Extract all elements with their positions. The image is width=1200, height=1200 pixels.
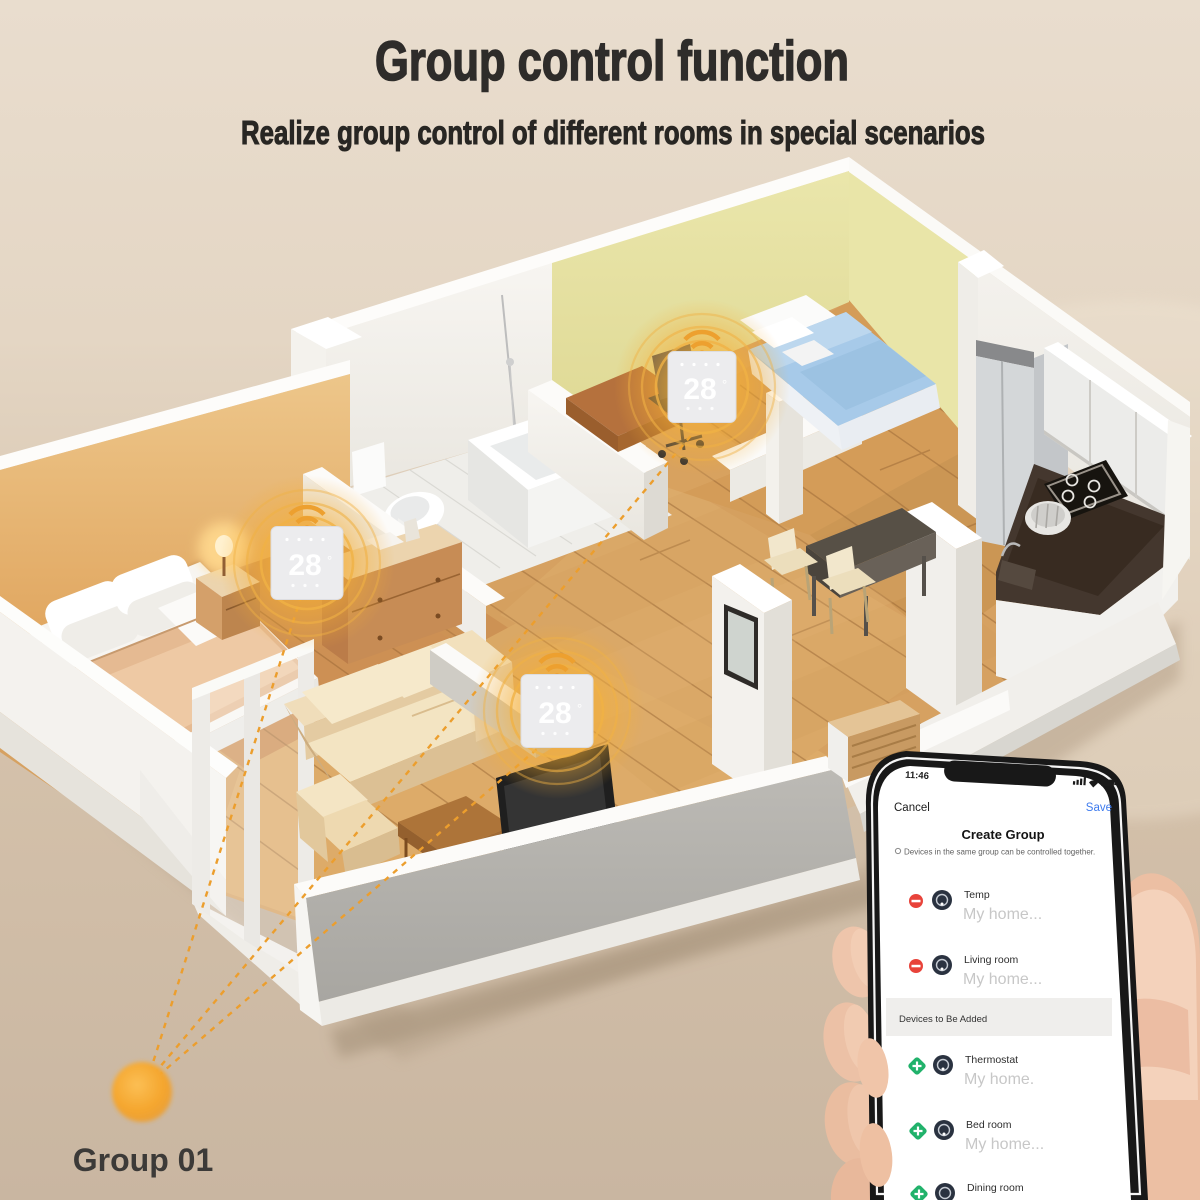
svg-text:Thermostat: Thermostat — [965, 1054, 1018, 1066]
svg-text:Create Group: Create Group — [961, 827, 1044, 842]
svg-text:My home...: My home... — [963, 906, 1042, 923]
svg-text:Realize group control of diffe: Realize group control of different rooms… — [241, 114, 985, 151]
svg-text:Dining room: Dining room — [967, 1182, 1024, 1194]
svg-text:°: ° — [577, 701, 582, 716]
svg-text:Devices to Be Added: Devices to Be Added — [899, 1014, 987, 1025]
svg-text:28: 28 — [538, 697, 571, 730]
svg-text:Living room: Living room — [964, 954, 1019, 966]
svg-text:28: 28 — [288, 549, 321, 582]
svg-text:Temp: Temp — [964, 889, 990, 901]
svg-text:28: 28 — [683, 373, 716, 406]
svg-text:Group control function: Group control function — [375, 29, 849, 92]
svg-text:Devices in the same group can: Devices in the same group can be control… — [904, 848, 1095, 857]
svg-text:Group 01: Group 01 — [73, 1142, 213, 1178]
svg-text:°: ° — [722, 377, 727, 392]
svg-text:Save: Save — [1086, 802, 1112, 814]
svg-text:Bed room: Bed room — [966, 1119, 1012, 1131]
svg-text:My home...: My home... — [965, 1136, 1044, 1153]
svg-text:11:46: 11:46 — [905, 770, 929, 782]
svg-text:My home.: My home. — [964, 1071, 1034, 1088]
svg-text:My home...: My home... — [963, 971, 1042, 988]
svg-text:Cancel: Cancel — [894, 802, 930, 814]
svg-text:°: ° — [327, 553, 332, 568]
